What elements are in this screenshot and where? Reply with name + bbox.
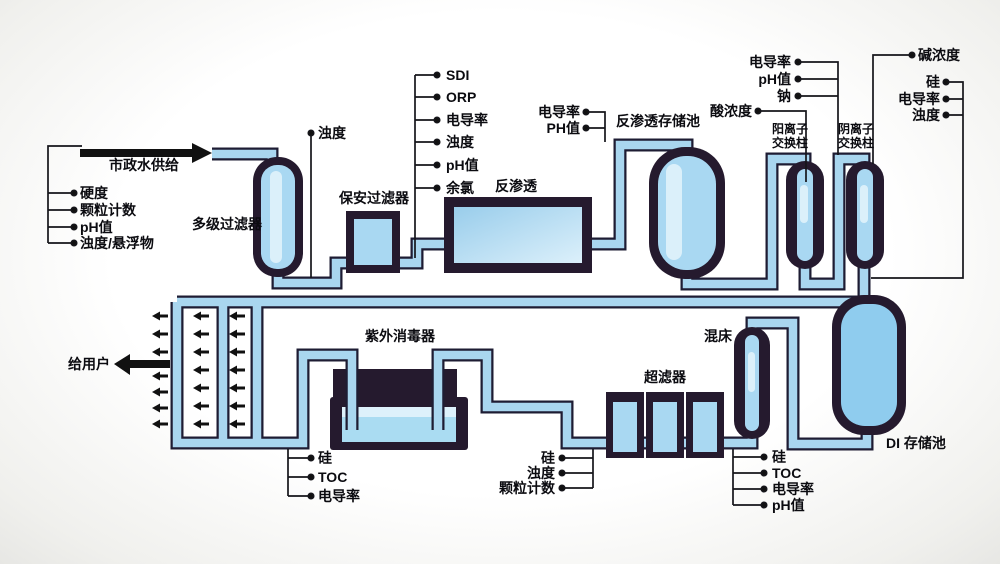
di-storage-tank-label: DI 存储池: [886, 435, 946, 451]
before-ro-sdi: SDI: [446, 67, 469, 83]
after-mb-conductivity: 电导率: [772, 481, 814, 497]
feed-measure-ph: pH值: [80, 219, 113, 235]
after-uv-toc: TOC: [318, 469, 347, 485]
municipal-feed-label: 市政水供给: [109, 157, 179, 173]
after-uv-conductivity: 电导率: [318, 488, 360, 504]
anion-exchanger-label-line1: 阴离子: [838, 121, 874, 136]
cation-exchanger-label-line1: 阳离子: [772, 121, 808, 136]
anion-exchange-column-vessel: [846, 161, 884, 269]
anion-exchanger-label-line2: 交换柱: [838, 135, 874, 150]
mixed-bed-label: 混床: [704, 328, 733, 344]
multistage-filter-label: 多级过滤器: [192, 216, 263, 232]
manifold-flow-arrows: [152, 312, 245, 429]
after-anion-silica: 硅: [926, 74, 940, 90]
after-anion-conductivity: 电导率: [898, 91, 940, 107]
after-mb-ph: pH值: [772, 497, 805, 513]
cation-exchanger-label-line2: 交换柱: [772, 135, 808, 150]
after-cation-conductivity: 电导率: [749, 54, 791, 70]
ro-storage-tank-label: 反渗透存储池: [616, 113, 700, 129]
water-treatment-diagram: 市政水供给 给用户 硬度 颗粒计数 pH值 浊度/悬浮物 多级过滤器 浊度 保安…: [0, 0, 1000, 564]
alkali-concentration-label: 碱浓度: [918, 47, 961, 63]
uv-sterilizer-label: 紫外消毒器: [365, 328, 436, 344]
ro-storage-tank-vessel: [649, 147, 725, 279]
after-cation-sodium: 钠: [777, 88, 791, 104]
ultrafilter-label: 超滤器: [643, 369, 687, 385]
after-multistage-turbidity-label: 浊度: [318, 125, 347, 141]
after-mb-toc: TOC: [772, 465, 801, 481]
before-ro-orp: ORP: [446, 89, 476, 105]
feed-measure-hardness: 硬度: [80, 185, 109, 201]
di-storage-tank-vessel: [832, 295, 906, 435]
alkali-sample-line: [873, 55, 911, 164]
process-flow-svg: 市政水供给 给用户 硬度 颗粒计数 pH值 浊度/悬浮物 多级过滤器 浊度 保安…: [0, 0, 1000, 564]
ultrafilter-units: [606, 392, 724, 458]
reverse-osmosis-label: 反渗透: [495, 178, 538, 194]
to-user-label: 给用户: [68, 356, 110, 372]
feed-measure-particle-count: 颗粒计数: [80, 202, 137, 218]
before-ro-sample-lines: [415, 75, 435, 258]
before-ro-ph: pH值: [446, 157, 479, 173]
security-filter-label: 保安过滤器: [338, 190, 410, 206]
after-mb-silica: 硅: [772, 449, 786, 465]
ro-permeate-ph: PH值: [547, 120, 580, 136]
before-uf-silica: 硅: [541, 450, 555, 466]
to-user-arrow-icon: [114, 354, 170, 375]
after-mixed-bed-sample-lines: [733, 449, 762, 505]
before-ro-conductivity: 电导率: [446, 112, 488, 128]
after-cation-ph: pH值: [758, 71, 791, 87]
acid-concentration-label: 酸浓度: [710, 103, 753, 119]
before-uf-turbidity: 浊度: [527, 465, 556, 481]
security-filter-vessel: [346, 211, 400, 273]
feed-measure-turbidity: 浊度/悬浮物: [80, 235, 154, 251]
before-uf-sample-lines: [564, 449, 593, 488]
ro-permeate-conductivity: 电导率: [538, 104, 580, 120]
reverse-osmosis-vessel: [444, 197, 592, 273]
before-ro-chlorine: 余氯: [445, 180, 474, 196]
after-anion-turbidity: 浊度: [912, 107, 941, 123]
cation-exchange-column-vessel: [786, 161, 824, 269]
before-ro-turbidity: 浊度: [446, 134, 475, 150]
ro-permeate-sample-lines: [587, 112, 605, 142]
before-uf-particle-count: 颗粒计数: [499, 480, 556, 496]
mixed-bed-vessel: [734, 327, 770, 439]
after-uv-sample-lines: [288, 449, 309, 496]
after-uv-silica: 硅: [318, 450, 332, 466]
